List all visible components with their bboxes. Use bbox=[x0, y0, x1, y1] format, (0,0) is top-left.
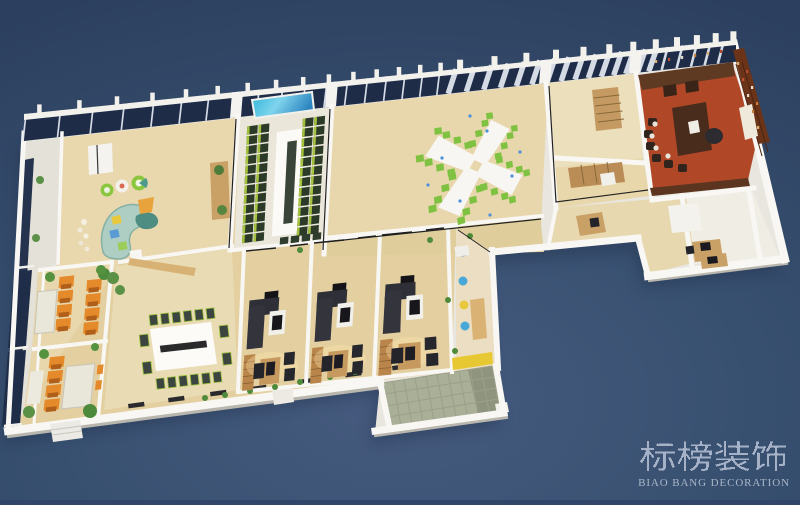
svg-text:BIAO BANG DECORATION: BIAO BANG DECORATION bbox=[638, 477, 790, 489]
